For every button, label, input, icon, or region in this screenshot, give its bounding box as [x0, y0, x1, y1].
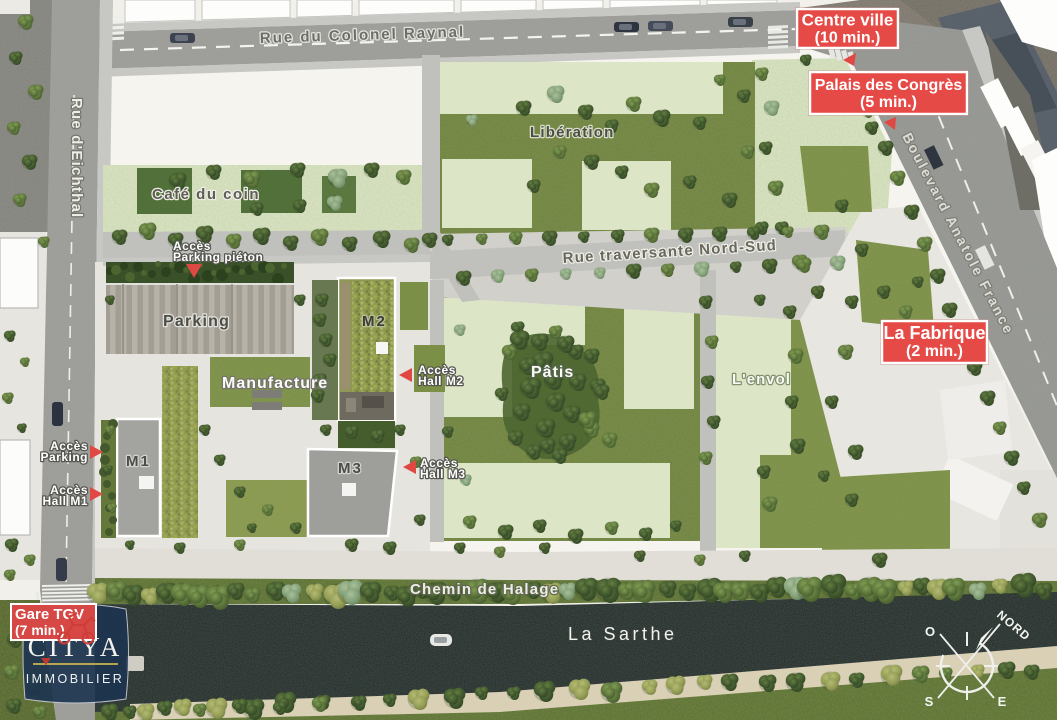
- svg-text:La Fabrique: La Fabrique: [883, 323, 985, 343]
- svg-text:Parking: Parking: [163, 313, 230, 330]
- svg-text:M1: M1: [126, 453, 151, 470]
- svg-text:IMMOBILIER: IMMOBILIER: [26, 672, 125, 686]
- svg-text:Parking: Parking: [40, 450, 88, 464]
- svg-text:Palais des Congrès: Palais des Congrès: [815, 77, 963, 94]
- svg-text:Café du coin: Café du coin: [152, 186, 260, 203]
- svg-text:Rue d'Eichthal: Rue d'Eichthal: [68, 98, 85, 218]
- svg-text:Libération: Libération: [530, 124, 615, 141]
- svg-text:L'envol: L'envol: [732, 371, 791, 388]
- svg-text:E: E: [998, 694, 1007, 709]
- svg-text:Hall M1: Hall M1: [42, 494, 88, 508]
- svg-text:(2 min.): (2 min.): [906, 343, 963, 360]
- svg-text:(7 min.): (7 min.): [15, 622, 65, 638]
- svg-text:Pâtis: Pâtis: [531, 364, 574, 381]
- svg-text:(10 min.): (10 min.): [815, 30, 881, 47]
- svg-text:M2: M2: [362, 313, 387, 330]
- svg-text:S: S: [925, 694, 934, 709]
- svg-text:M3: M3: [338, 460, 363, 477]
- svg-text:(5 min.): (5 min.): [860, 94, 917, 111]
- svg-text:O: O: [925, 624, 935, 639]
- svg-text:Centre ville: Centre ville: [802, 11, 894, 30]
- svg-text:Hall M3: Hall M3: [420, 467, 466, 481]
- svg-text:La Sarthe: La Sarthe: [568, 624, 678, 644]
- svg-text:Chemin de Halage: Chemin de Halage: [410, 581, 559, 598]
- svg-text:Manufacture: Manufacture: [222, 375, 328, 392]
- svg-text:Hall M2: Hall M2: [418, 374, 464, 388]
- svg-text:Parking piéton: Parking piéton: [173, 250, 263, 264]
